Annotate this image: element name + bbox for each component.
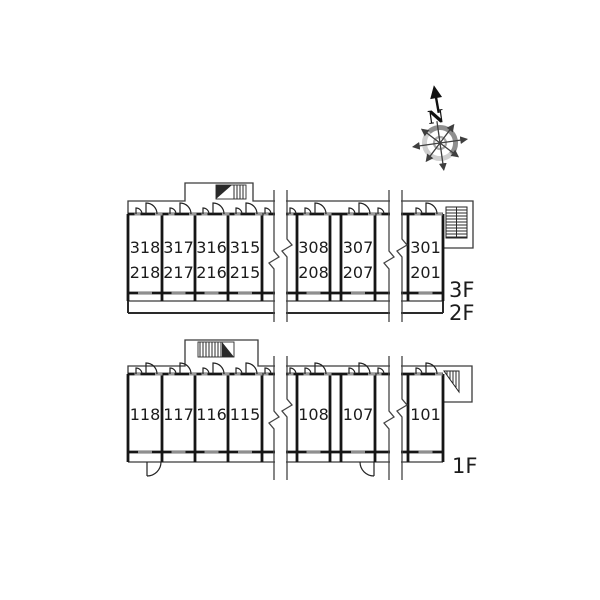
- unit-label: 316: [196, 238, 227, 257]
- floor-label-1f: 1F: [452, 454, 477, 478]
- unit-label: 116: [196, 405, 227, 424]
- unit-label: 108: [298, 405, 329, 424]
- floor-plan-drawing: 318 218 317 217 316 216 315 215 308 208 …: [0, 0, 600, 600]
- unit-label: 317: [163, 238, 194, 257]
- unit-label: 201: [410, 263, 441, 282]
- unit-label: 308: [298, 238, 329, 257]
- unit-label: 315: [230, 238, 261, 257]
- floor-label-3f: 3F: [449, 278, 474, 302]
- unit-label: 318: [130, 238, 161, 257]
- unit-label: 216: [196, 263, 227, 282]
- unit-label: 307: [343, 238, 374, 257]
- unit-label: 208: [298, 263, 329, 282]
- unit-label: 118: [130, 405, 161, 424]
- unit-label: 101: [410, 405, 441, 424]
- floor-label-2f: 2F: [449, 301, 474, 325]
- unit-label: 218: [130, 263, 161, 282]
- north-label: N: [426, 106, 445, 129]
- unit-label: 207: [343, 263, 374, 282]
- unit-label: 215: [230, 263, 261, 282]
- unit-label: 107: [343, 405, 374, 424]
- unit-label: 115: [230, 405, 261, 424]
- floor-plan-page: 318 218 317 217 316 216 315 215 308 208 …: [0, 0, 600, 600]
- unit-label: 217: [163, 263, 194, 282]
- background: [0, 0, 600, 600]
- unit-label: 301: [410, 238, 441, 257]
- unit-label: 117: [163, 405, 194, 424]
